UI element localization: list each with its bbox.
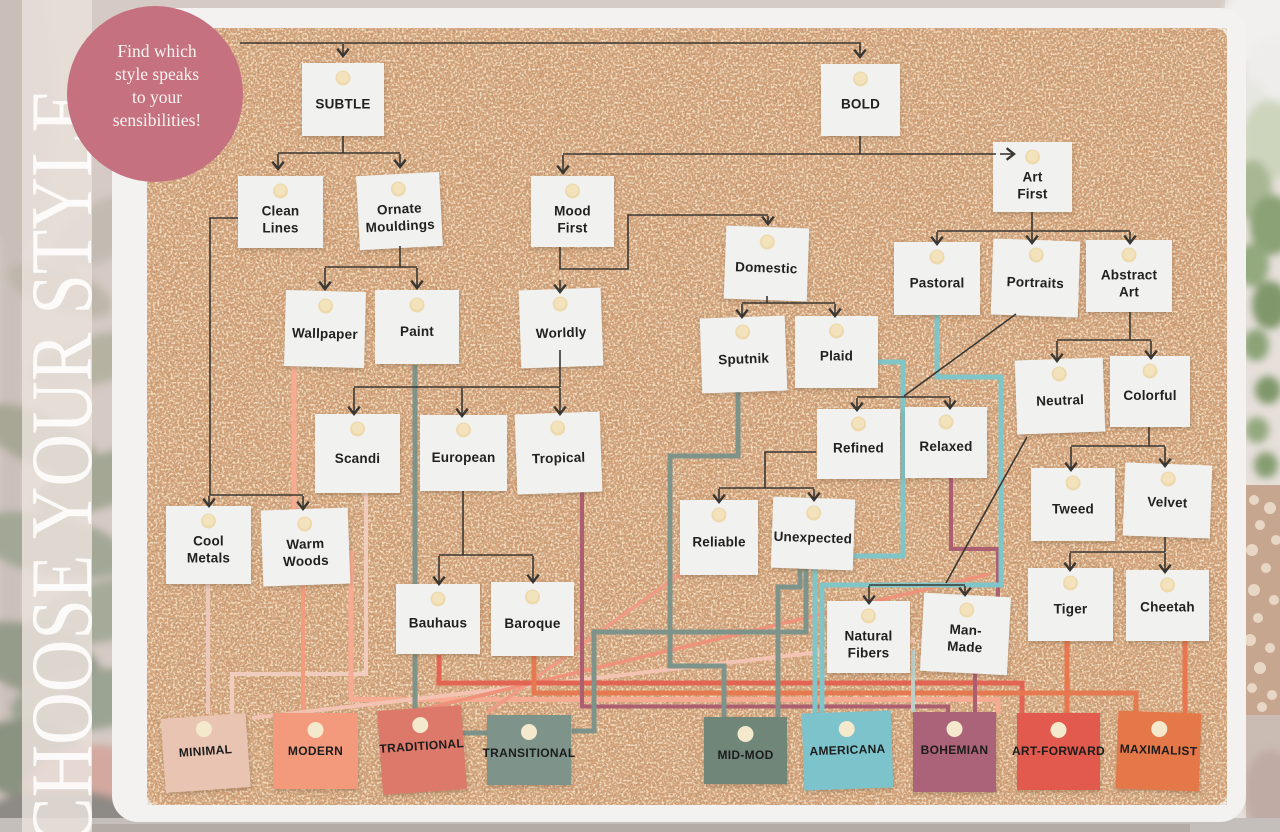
svg-text:sensibilities!: sensibilities! — [113, 110, 201, 130]
svg-text:Mood: Mood — [554, 204, 591, 219]
svg-text:Colorful: Colorful — [1123, 388, 1176, 403]
svg-text:Natural: Natural — [845, 629, 893, 644]
svg-text:Tweed: Tweed — [1052, 501, 1094, 516]
svg-text:First: First — [1017, 187, 1048, 202]
svg-text:Woods: Woods — [283, 553, 329, 570]
svg-text:Sputnik: Sputnik — [718, 351, 770, 368]
svg-text:Man-: Man- — [949, 622, 982, 639]
svg-text:Tropical: Tropical — [532, 450, 586, 467]
svg-text:Portraits: Portraits — [1006, 274, 1064, 291]
svg-text:Scandi: Scandi — [335, 451, 380, 466]
svg-text:Wallpaper: Wallpaper — [292, 325, 359, 342]
svg-text:MID-MOD: MID-MOD — [717, 748, 773, 762]
svg-text:Reliable: Reliable — [692, 535, 746, 550]
svg-text:Unexpected: Unexpected — [773, 529, 852, 547]
svg-text:BOHEMIAN: BOHEMIAN — [921, 743, 989, 757]
svg-text:Warm: Warm — [286, 536, 324, 552]
svg-text:First: First — [557, 221, 588, 236]
svg-text:Domestic: Domestic — [735, 259, 798, 276]
svg-text:CHOOSE YOUR STYLE: CHOOSE YOUR STYLE — [14, 88, 111, 832]
svg-text:Pastoral: Pastoral — [910, 275, 965, 290]
svg-text:Abstract: Abstract — [1101, 268, 1158, 283]
svg-text:Paint: Paint — [400, 324, 434, 339]
svg-text:Baroque: Baroque — [504, 616, 560, 631]
svg-text:MAXIMALIST: MAXIMALIST — [1119, 742, 1197, 759]
svg-text:Worldly: Worldly — [536, 324, 587, 341]
svg-text:Plaid: Plaid — [820, 349, 853, 364]
svg-text:ART-FORWARD: ART-FORWARD — [1012, 744, 1105, 758]
svg-text:Neutral: Neutral — [1036, 392, 1084, 409]
svg-text:Find which: Find which — [117, 41, 196, 61]
svg-text:Fibers: Fibers — [848, 646, 890, 661]
svg-text:Lines: Lines — [262, 221, 298, 236]
svg-text:European: European — [432, 450, 496, 465]
svg-text:Cheetah: Cheetah — [1140, 600, 1195, 615]
svg-text:Made: Made — [947, 639, 983, 656]
svg-text:Art: Art — [1022, 170, 1042, 185]
svg-text:SUBTLE: SUBTLE — [315, 96, 370, 111]
svg-text:Ornate: Ornate — [377, 200, 423, 217]
svg-text:Metals: Metals — [187, 551, 230, 566]
svg-text:Relaxed: Relaxed — [919, 439, 972, 454]
svg-text:TRANSITIONAL: TRANSITIONAL — [483, 746, 576, 760]
svg-text:to your: to your — [132, 87, 182, 107]
svg-text:Tiger: Tiger — [1054, 601, 1088, 616]
svg-text:BOLD: BOLD — [841, 97, 880, 112]
svg-text:style speaks: style speaks — [115, 64, 199, 84]
svg-text:MODERN: MODERN — [288, 744, 343, 758]
svg-text:Cool: Cool — [193, 534, 224, 549]
svg-text:Clean: Clean — [262, 204, 300, 219]
svg-text:Refined: Refined — [833, 441, 884, 456]
svg-text:Bauhaus: Bauhaus — [409, 616, 467, 631]
svg-text:Art: Art — [1119, 285, 1139, 300]
svg-text:AMERICANA: AMERICANA — [809, 742, 886, 759]
svg-text:Velvet: Velvet — [1147, 494, 1188, 510]
